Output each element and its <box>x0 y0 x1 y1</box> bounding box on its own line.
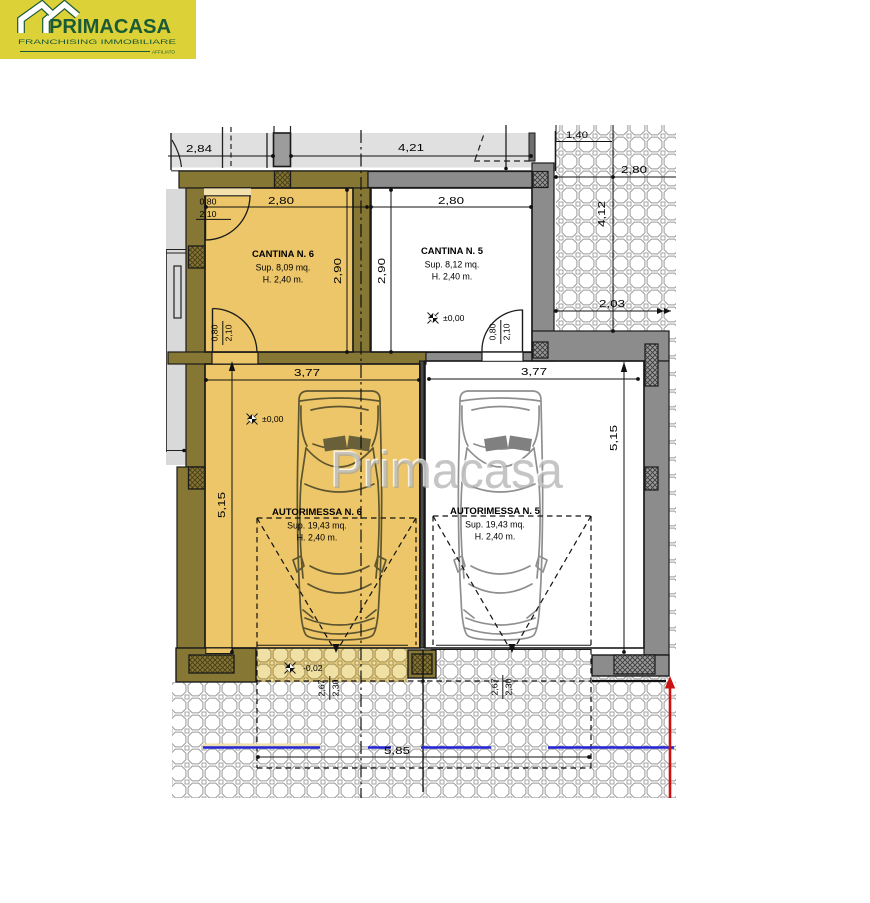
svg-text:3,77: 3,77 <box>521 366 547 378</box>
svg-text:-0,02: -0,02 <box>303 663 323 673</box>
svg-text:CANTINA N. 6: CANTINA N. 6 <box>252 249 314 259</box>
svg-text:H. 2,40 m.: H. 2,40 m. <box>475 532 516 542</box>
svg-text:Sup. 8,09 mq.: Sup. 8,09 mq. <box>256 263 311 273</box>
svg-text:CANTINA N. 5: CANTINA N. 5 <box>421 246 483 256</box>
svg-text:1,40: 1,40 <box>566 130 588 141</box>
svg-text:FRANCHISING IMMOBILIARE: FRANCHISING IMMOBILIARE <box>18 39 176 46</box>
svg-text:2,30: 2,30 <box>505 678 514 695</box>
svg-text:AUTORIMESSA N. 6: AUTORIMESSA N. 6 <box>272 507 362 517</box>
svg-text:5,15: 5,15 <box>216 492 228 518</box>
svg-text:3,77: 3,77 <box>294 367 320 379</box>
svg-text:2,67: 2,67 <box>318 679 327 696</box>
svg-text:PRIMACASA: PRIMACASA <box>49 15 171 38</box>
svg-text:4,21: 4,21 <box>398 142 424 154</box>
svg-text:2,03: 2,03 <box>599 298 625 310</box>
svg-text:Primacasa: Primacasa <box>331 442 563 500</box>
svg-text:5,85: 5,85 <box>384 745 410 757</box>
svg-text:2,80: 2,80 <box>268 195 294 207</box>
svg-text:±0,00: ±0,00 <box>443 313 465 323</box>
svg-text:H. 2,40 m.: H. 2,40 m. <box>297 533 338 543</box>
svg-text:AUTORIMESSA N. 5: AUTORIMESSA N. 5 <box>450 506 540 516</box>
svg-text:2,10: 2,10 <box>503 323 512 340</box>
svg-text:Sup. 19,43 mq.: Sup. 19,43 mq. <box>465 520 525 530</box>
svg-text:4,12: 4,12 <box>596 201 608 227</box>
svg-text:Sup. 8,12 mq.: Sup. 8,12 mq. <box>425 260 480 270</box>
svg-text:H. 2,40 m.: H. 2,40 m. <box>432 272 473 282</box>
svg-text:AFFILIATO: AFFILIATO <box>152 50 175 56</box>
svg-text:2,90: 2,90 <box>332 258 344 284</box>
svg-text:0,80: 0,80 <box>489 323 498 340</box>
svg-text:2,80: 2,80 <box>438 195 464 207</box>
svg-text:Sup. 19,43 mq.: Sup. 19,43 mq. <box>287 521 347 531</box>
svg-text:2,10: 2,10 <box>225 324 234 341</box>
svg-text:2,30: 2,30 <box>332 679 341 696</box>
svg-text:2,90: 2,90 <box>376 258 388 284</box>
svg-text:2,80: 2,80 <box>621 164 647 176</box>
svg-text:0,80: 0,80 <box>211 324 220 341</box>
svg-text:2,84: 2,84 <box>186 143 212 155</box>
svg-text:0,80: 0,80 <box>200 198 217 207</box>
svg-text:2,10: 2,10 <box>200 210 217 219</box>
svg-text:H. 2,40 m.: H. 2,40 m. <box>263 275 304 285</box>
svg-text:2,67: 2,67 <box>491 678 500 695</box>
svg-text:±0,00: ±0,00 <box>262 414 284 424</box>
svg-text:5,15: 5,15 <box>608 425 620 451</box>
